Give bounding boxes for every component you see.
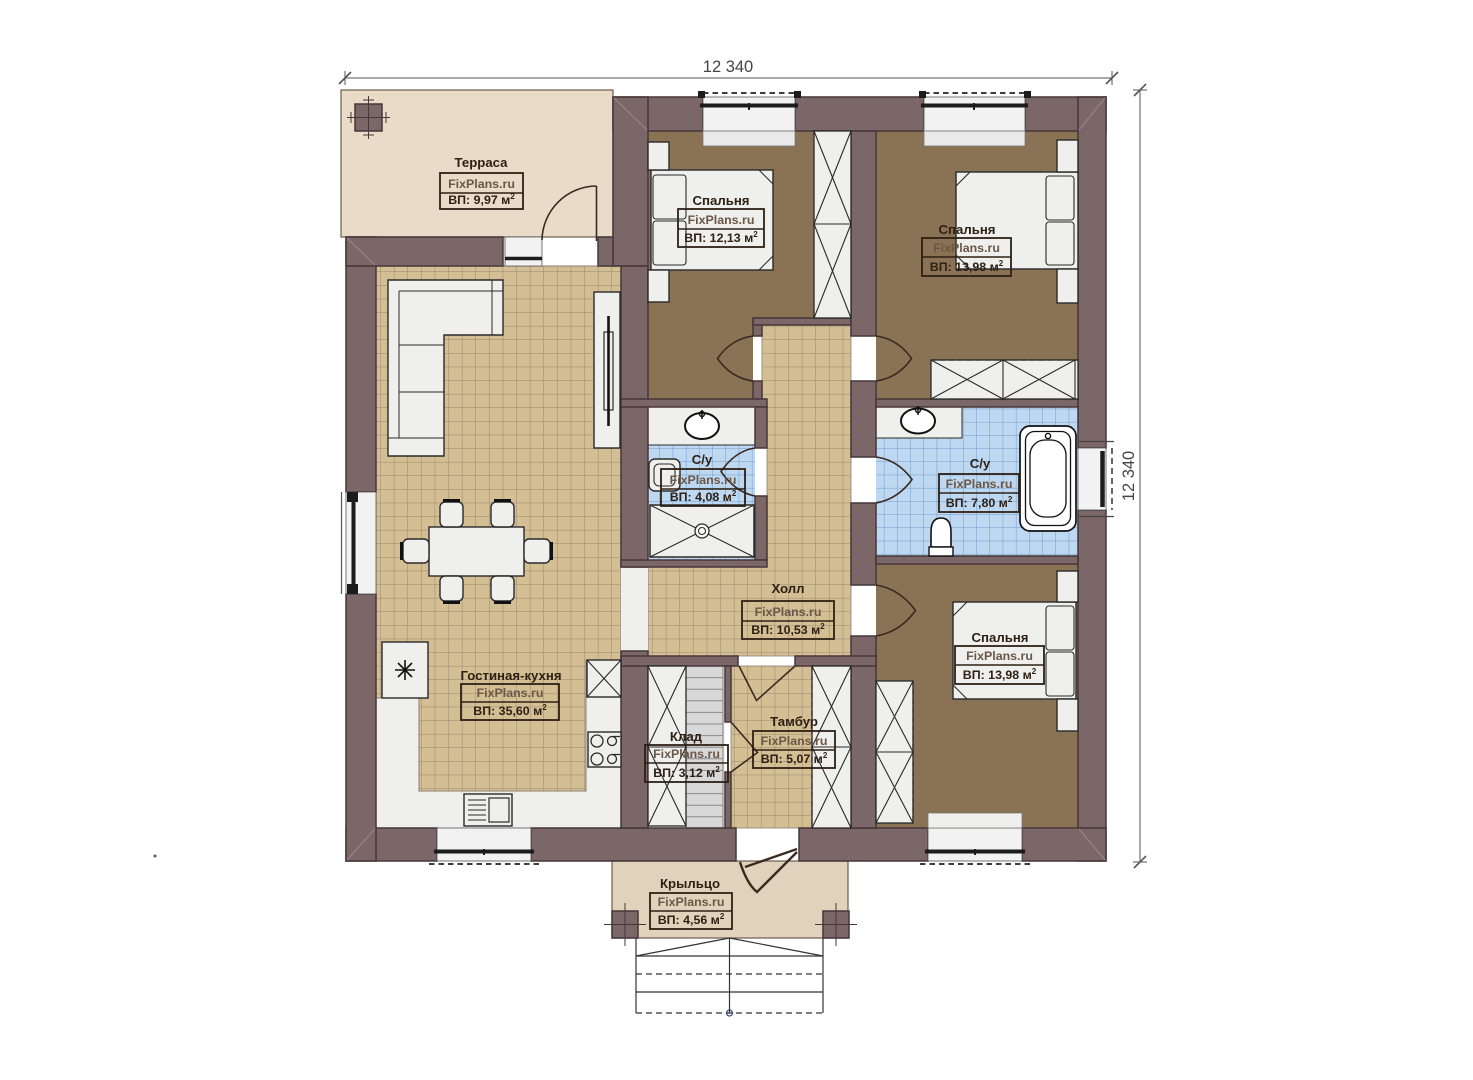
svg-text:FixPlans.ru: FixPlans.ru (933, 241, 1000, 255)
svg-text:Спальня: Спальня (939, 222, 996, 237)
svg-text:12 340: 12 340 (703, 58, 753, 76)
svg-text:FixPlans.ru: FixPlans.ru (658, 895, 725, 909)
svg-text:FixPlans.ru: FixPlans.ru (477, 686, 544, 700)
svg-text:ВП: 7,80 м2: ВП: 7,80 м2 (946, 495, 1013, 510)
svg-text:12 340: 12 340 (1120, 451, 1138, 501)
svg-text:С/у: С/у (970, 456, 991, 471)
svg-text:ВП: 4,56 м2: ВП: 4,56 м2 (658, 912, 725, 927)
svg-text:FixPlans.ru: FixPlans.ru (761, 734, 828, 748)
svg-text:ВП: 12,13 м2: ВП: 12,13 м2 (684, 230, 758, 245)
svg-text:ВП: 9,97 м2: ВП: 9,97 м2 (448, 192, 515, 207)
svg-text:ВП: 4,08 м2: ВП: 4,08 м2 (670, 489, 737, 504)
svg-text:ВП: 10,53 м2: ВП: 10,53 м2 (751, 622, 825, 637)
svg-text:FixPlans.ru: FixPlans.ru (946, 477, 1013, 491)
svg-text:FixPlans.ru: FixPlans.ru (755, 605, 822, 619)
svg-text:ВП: 3,12 м2: ВП: 3,12 м2 (653, 765, 720, 780)
svg-text:FixPlans.ru: FixPlans.ru (653, 747, 720, 761)
svg-text:FixPlans.ru: FixPlans.ru (688, 213, 755, 227)
svg-text:ВП: 13,98 м2: ВП: 13,98 м2 (963, 667, 1037, 682)
svg-text:ВП: 5,07 м2: ВП: 5,07 м2 (761, 751, 828, 766)
svg-text:ВП: 35,60 м2: ВП: 35,60 м2 (473, 703, 547, 718)
svg-text:Холл: Холл (771, 581, 804, 596)
svg-text:FixPlans.ru: FixPlans.ru (448, 177, 515, 191)
svg-text:FixPlans.ru: FixPlans.ru (670, 473, 737, 487)
svg-text:Тамбур: Тамбур (770, 714, 818, 729)
svg-text:FixPlans.ru: FixPlans.ru (966, 649, 1033, 663)
svg-text:С/у: С/у (692, 452, 713, 467)
svg-text:Гостиная-кухня: Гостиная-кухня (460, 668, 561, 683)
svg-text:Крыльцо: Крыльцо (660, 876, 720, 891)
svg-text:Спальня: Спальня (693, 193, 750, 208)
svg-text:Терраса: Терраса (454, 155, 508, 170)
svg-text:Спальня: Спальня (972, 630, 1029, 645)
svg-text:Клад: Клад (670, 729, 703, 744)
svg-text:ВП: 13,98 м2: ВП: 13,98 м2 (930, 259, 1004, 274)
